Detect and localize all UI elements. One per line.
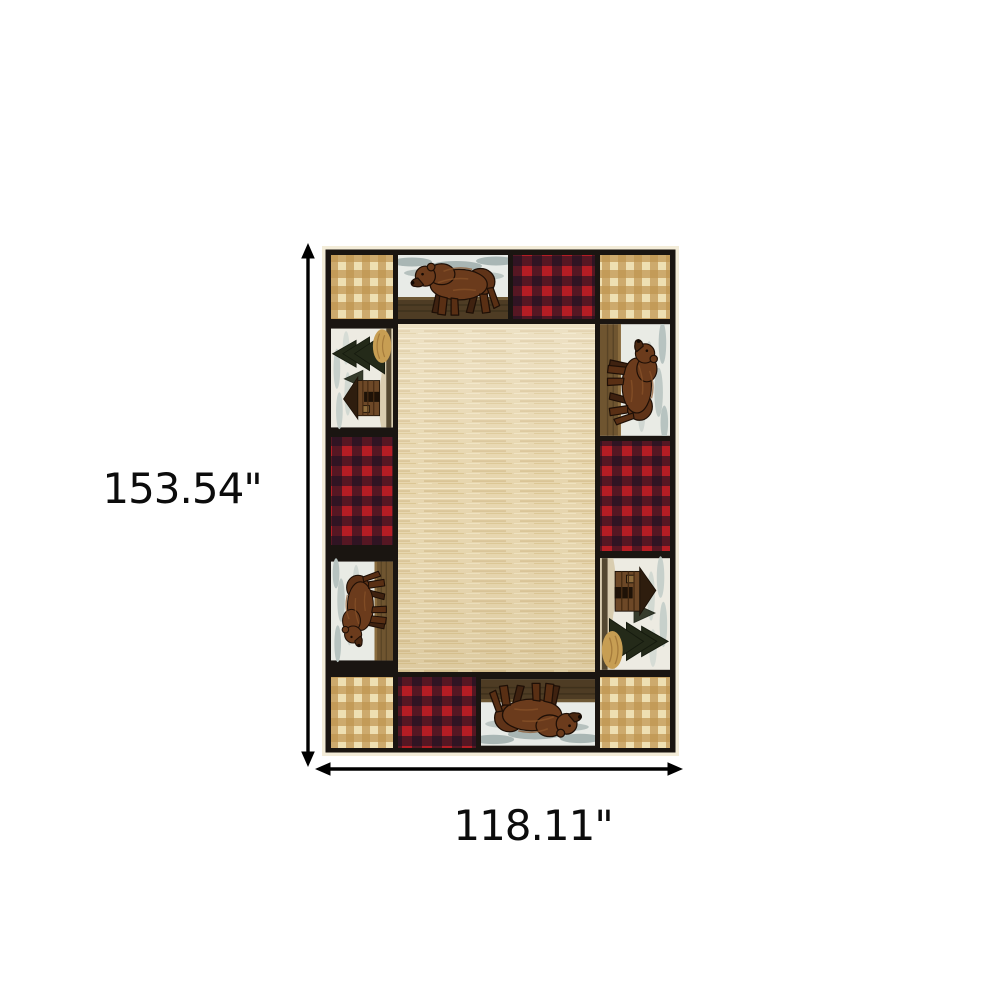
rug-right-border-column [600,322,670,670]
rug-left-border-column [331,329,393,663]
rug-bottom-border-row [331,677,670,748]
arrowhead-left-icon [315,762,331,776]
width-dimension-arrow [314,757,684,781]
arrowhead-up-icon [301,243,315,259]
height-dimension-arrow [296,242,320,768]
product-dimension-diagram: 153.54" 118.11" [0,0,1000,1000]
arrowhead-right-icon [668,762,684,776]
gingham-corner-top-right [600,255,670,319]
bear-panel-right [600,322,670,439]
bear-panel-bottom [473,679,602,745]
rug-center-field [398,324,595,672]
buffalo-plaid-right [600,441,670,551]
buffalo-plaid-top [513,255,595,319]
bear-panel-left [331,558,393,662]
cabin-panel-left [331,329,393,430]
buffalo-plaid-bottom [398,677,476,748]
bear-panel-top [392,255,516,319]
gingham-corner-top-left [331,255,393,319]
arrowhead-down-icon [301,752,315,768]
width-dimension-label: 118.11" [421,803,645,849]
buffalo-plaid-left [331,437,393,545]
rug-top-border-row [331,255,670,319]
rug-graphic [322,246,679,756]
rug-image [322,246,679,756]
gingham-corner-bottom-left [331,677,393,748]
cabin-panel-right [600,556,670,670]
height-dimension-label: 153.54" [70,466,294,512]
gingham-corner-bottom-right [600,677,670,748]
